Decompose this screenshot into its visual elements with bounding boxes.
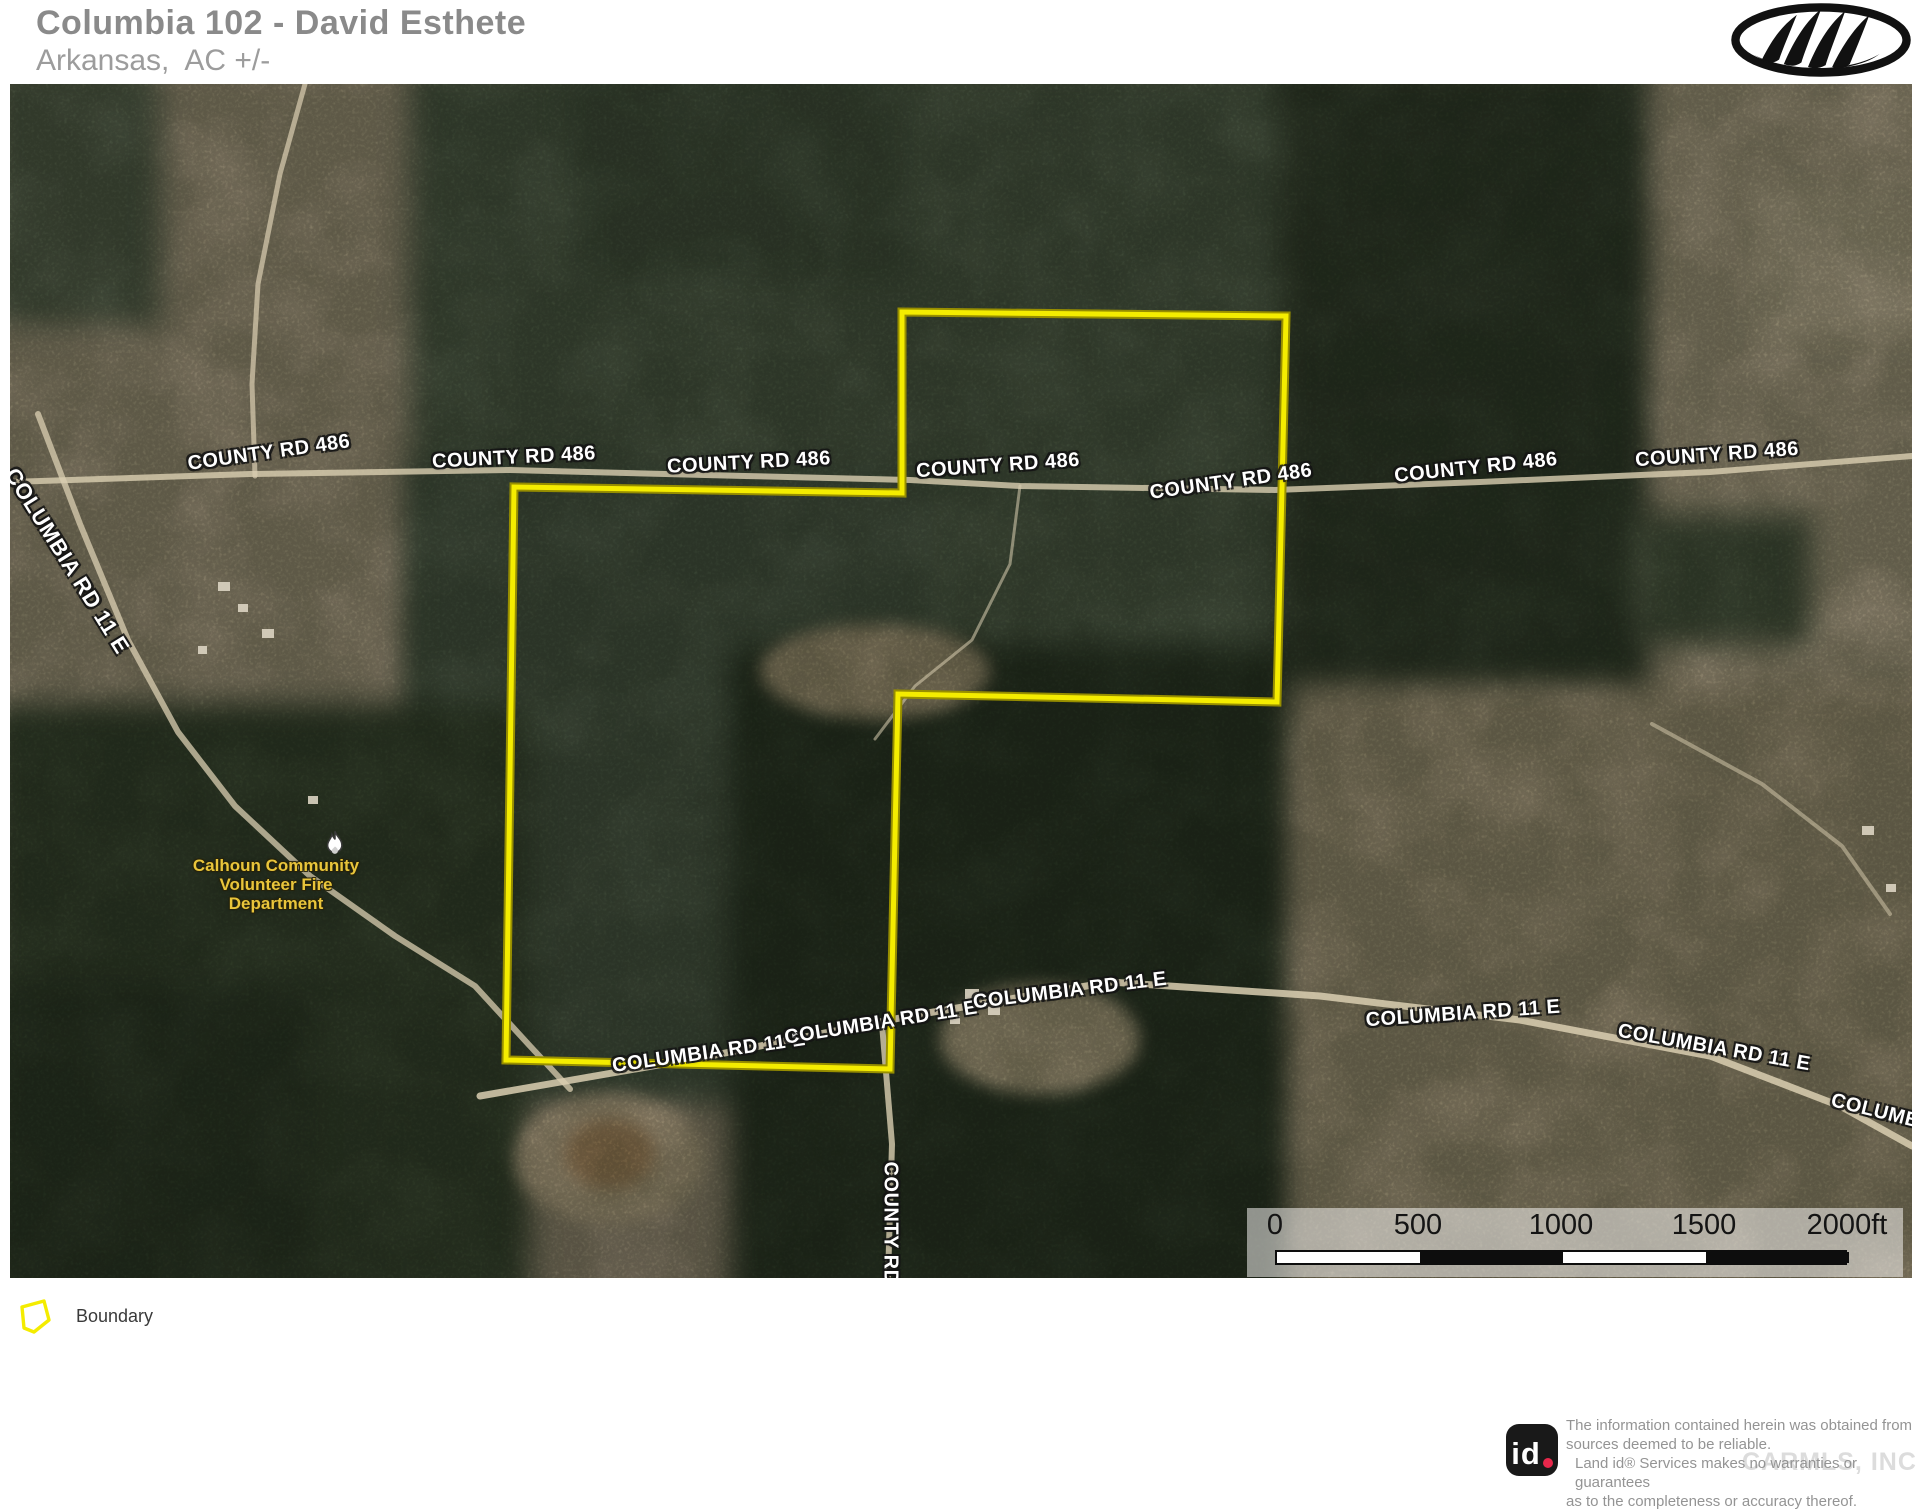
boundary-layer	[10, 84, 1912, 1278]
fire-icon	[322, 830, 348, 858]
disclaimer-line: sources deemed to be reliable.	[1566, 1435, 1916, 1454]
scale-segment	[1420, 1252, 1563, 1263]
disclaimer: The information contained herein was obt…	[1566, 1416, 1916, 1511]
aerial-map: COUNTY RD 486COUNTY RD 486COUNTY RD 486C…	[10, 84, 1912, 1278]
poi-label-line1: Calhoun Community	[193, 856, 359, 876]
boundary-legend-icon	[14, 1297, 54, 1335]
legend: Boundary	[14, 1294, 153, 1338]
scale-tick: 2000ft	[1807, 1209, 1888, 1242]
poi-label-line3: Department	[229, 894, 323, 914]
scale-tick: 1000	[1529, 1209, 1594, 1242]
disclaimer-line: Land id® Services makes no warranties or…	[1566, 1454, 1916, 1492]
brand-claw-logo-icon	[1728, 2, 1914, 78]
scale-segment	[1706, 1252, 1849, 1263]
disclaimer-line: as to the completeness or accuracy there…	[1566, 1492, 1916, 1511]
scale-segment	[1563, 1252, 1706, 1263]
land-id-logo-dot-icon	[1543, 1458, 1553, 1468]
road-label: COUNTY RD	[879, 1161, 902, 1278]
page-subtitle: Arkansas, AC +/-	[36, 44, 270, 78]
header: Columbia 102 - David Esthete Arkansas, A…	[0, 0, 1920, 84]
disclaimer-line: The information contained herein was obt…	[1566, 1416, 1916, 1435]
scale-segment	[1277, 1252, 1420, 1263]
scale-tick: 500	[1394, 1209, 1442, 1242]
poi-label-line2: Volunteer Fire	[219, 875, 332, 895]
land-id-logo-text: id	[1511, 1438, 1541, 1469]
legend-item-boundary: Boundary	[76, 1306, 153, 1327]
property-boundary-outline	[506, 312, 1286, 1069]
scale-bar	[1275, 1250, 1847, 1265]
scale-bar-panel: 0500100015002000ft	[1247, 1208, 1903, 1277]
scale-tick: 1500	[1672, 1209, 1737, 1242]
scale-tick: 0	[1267, 1209, 1283, 1242]
page-title: Columbia 102 - David Esthete	[36, 4, 526, 43]
land-id-logo: id	[1506, 1424, 1558, 1476]
